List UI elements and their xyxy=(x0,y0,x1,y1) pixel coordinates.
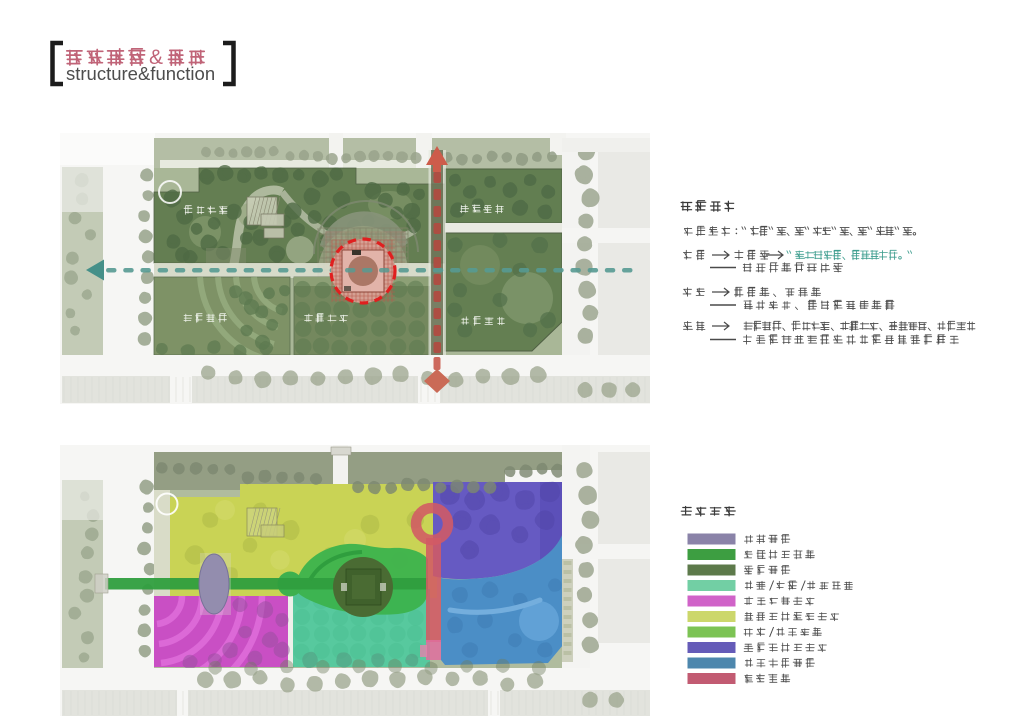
svg-text:structure&function: structure&function xyxy=(66,63,215,84)
